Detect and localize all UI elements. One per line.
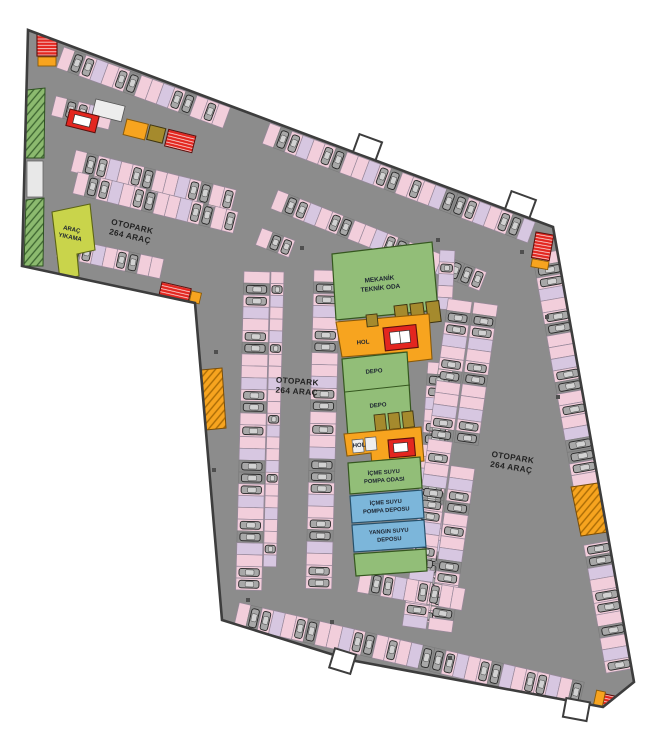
- parking-stall: [267, 401, 280, 413]
- parking-stall: [266, 449, 279, 461]
- parking-stall: [236, 554, 262, 566]
- parking-stall: [269, 354, 282, 366]
- parking-stall: [239, 436, 265, 448]
- parking-stall: [311, 364, 337, 376]
- parking-stall: [266, 460, 279, 472]
- parking-stall: [244, 271, 270, 283]
- stair-top-left: [37, 29, 57, 56]
- car-icon: [241, 474, 261, 482]
- parking-stall: [241, 366, 267, 378]
- parking-stall: [306, 553, 332, 565]
- room-wing-olive: [147, 125, 166, 143]
- exit-box-bottom-right: [563, 698, 590, 721]
- parking-stall: [263, 555, 276, 567]
- parking-stall: [271, 272, 284, 284]
- parking-stall: [438, 274, 454, 287]
- car-icon: [310, 520, 330, 528]
- parking-stall: [310, 412, 336, 424]
- car-icon: [239, 580, 259, 588]
- structural-column: [520, 250, 524, 254]
- parking-stall: [265, 496, 278, 508]
- landing-top-left: [38, 57, 56, 66]
- structural-column: [330, 620, 334, 624]
- room-olive-4: [374, 414, 387, 431]
- car-icon: [311, 485, 331, 493]
- room-olive-hall-upper: [366, 314, 378, 327]
- parking-stall: [265, 484, 278, 496]
- car-icon: [315, 343, 335, 351]
- parking-stall: [309, 447, 335, 459]
- car-icon: [309, 567, 329, 575]
- stair-top-right: [531, 232, 553, 261]
- car-icon: [239, 568, 259, 576]
- parking-floor-plan: MEKANİK TEKNİK ODA HOL DEPO DEPO HOL İÇM…: [0, 0, 660, 746]
- car-icon: [244, 391, 264, 399]
- tank-yangin-suyu-deposu: [352, 520, 426, 552]
- car-icon: [267, 474, 277, 482]
- parking-stall: [265, 508, 278, 520]
- car-icon: [268, 415, 278, 423]
- parking-stall: [243, 307, 269, 319]
- parking-stall: [308, 506, 334, 518]
- structural-column: [212, 468, 216, 472]
- parking-stall: [264, 519, 277, 531]
- car-icon: [242, 462, 262, 470]
- parking-stall: [270, 295, 283, 307]
- car-icon: [240, 533, 260, 541]
- car-icon: [313, 402, 333, 410]
- parking-stall: [239, 448, 265, 460]
- parking-stall: [242, 354, 268, 366]
- car-icon: [246, 297, 266, 305]
- parking-stall: [307, 541, 333, 553]
- car-icon: [311, 473, 331, 481]
- elevator-core-lower-cab: [393, 442, 408, 452]
- room-olive-5: [388, 412, 401, 429]
- car-icon: [270, 345, 280, 353]
- room-hall-lower-b: [365, 437, 377, 451]
- car-icon: [309, 579, 329, 587]
- parking-stall: [439, 250, 455, 263]
- parking-stall: [269, 331, 282, 343]
- car-icon: [245, 332, 265, 340]
- room-olive-6: [402, 411, 415, 428]
- car-icon: [245, 344, 265, 352]
- car-icon: [243, 427, 263, 435]
- label-hol-upper: HOL: [357, 339, 370, 346]
- car-icon: [243, 403, 263, 411]
- parking-stall: [269, 319, 282, 331]
- car-icon: [313, 426, 333, 434]
- parking-stall: [312, 353, 338, 365]
- parking-stall: [270, 307, 283, 319]
- parking-stall: [238, 507, 264, 519]
- ramp-green-upper: [25, 88, 45, 158]
- parking-stall: [240, 413, 266, 425]
- structural-column: [246, 598, 250, 602]
- parking-stall: [309, 435, 335, 447]
- car-icon: [312, 461, 332, 469]
- parking-stall: [242, 319, 268, 331]
- parking-stall: [237, 543, 263, 555]
- structural-column: [448, 656, 452, 660]
- parking-stall: [238, 495, 264, 507]
- parking-stall: [312, 317, 338, 329]
- parking-stall: [438, 285, 454, 298]
- parking-stall: [264, 531, 277, 543]
- car-icon: [240, 521, 260, 529]
- parking-stall: [241, 377, 267, 389]
- car-icon: [265, 545, 275, 553]
- parking-stall: [266, 437, 279, 449]
- service-room-left: [27, 161, 43, 197]
- car-icon: [310, 532, 330, 540]
- parking-stall: [308, 494, 334, 506]
- car-icon: [316, 296, 336, 304]
- structural-column: [556, 395, 560, 399]
- tank-icme-suyu-pompa-deposu: [350, 490, 424, 523]
- structural-column: [300, 246, 304, 250]
- car-icon: [272, 286, 282, 294]
- room-green-bottom: [354, 549, 427, 576]
- label-hol-lower: HOL: [353, 442, 366, 449]
- car-icon: [441, 264, 453, 272]
- structural-column: [545, 315, 549, 319]
- structural-column: [436, 238, 440, 242]
- ramp-green-lower: [24, 198, 44, 266]
- car-icon: [315, 331, 335, 339]
- parking-stall: [267, 425, 280, 437]
- car-icon: [241, 486, 261, 494]
- structural-column: [214, 350, 218, 354]
- car-icon: [246, 285, 266, 293]
